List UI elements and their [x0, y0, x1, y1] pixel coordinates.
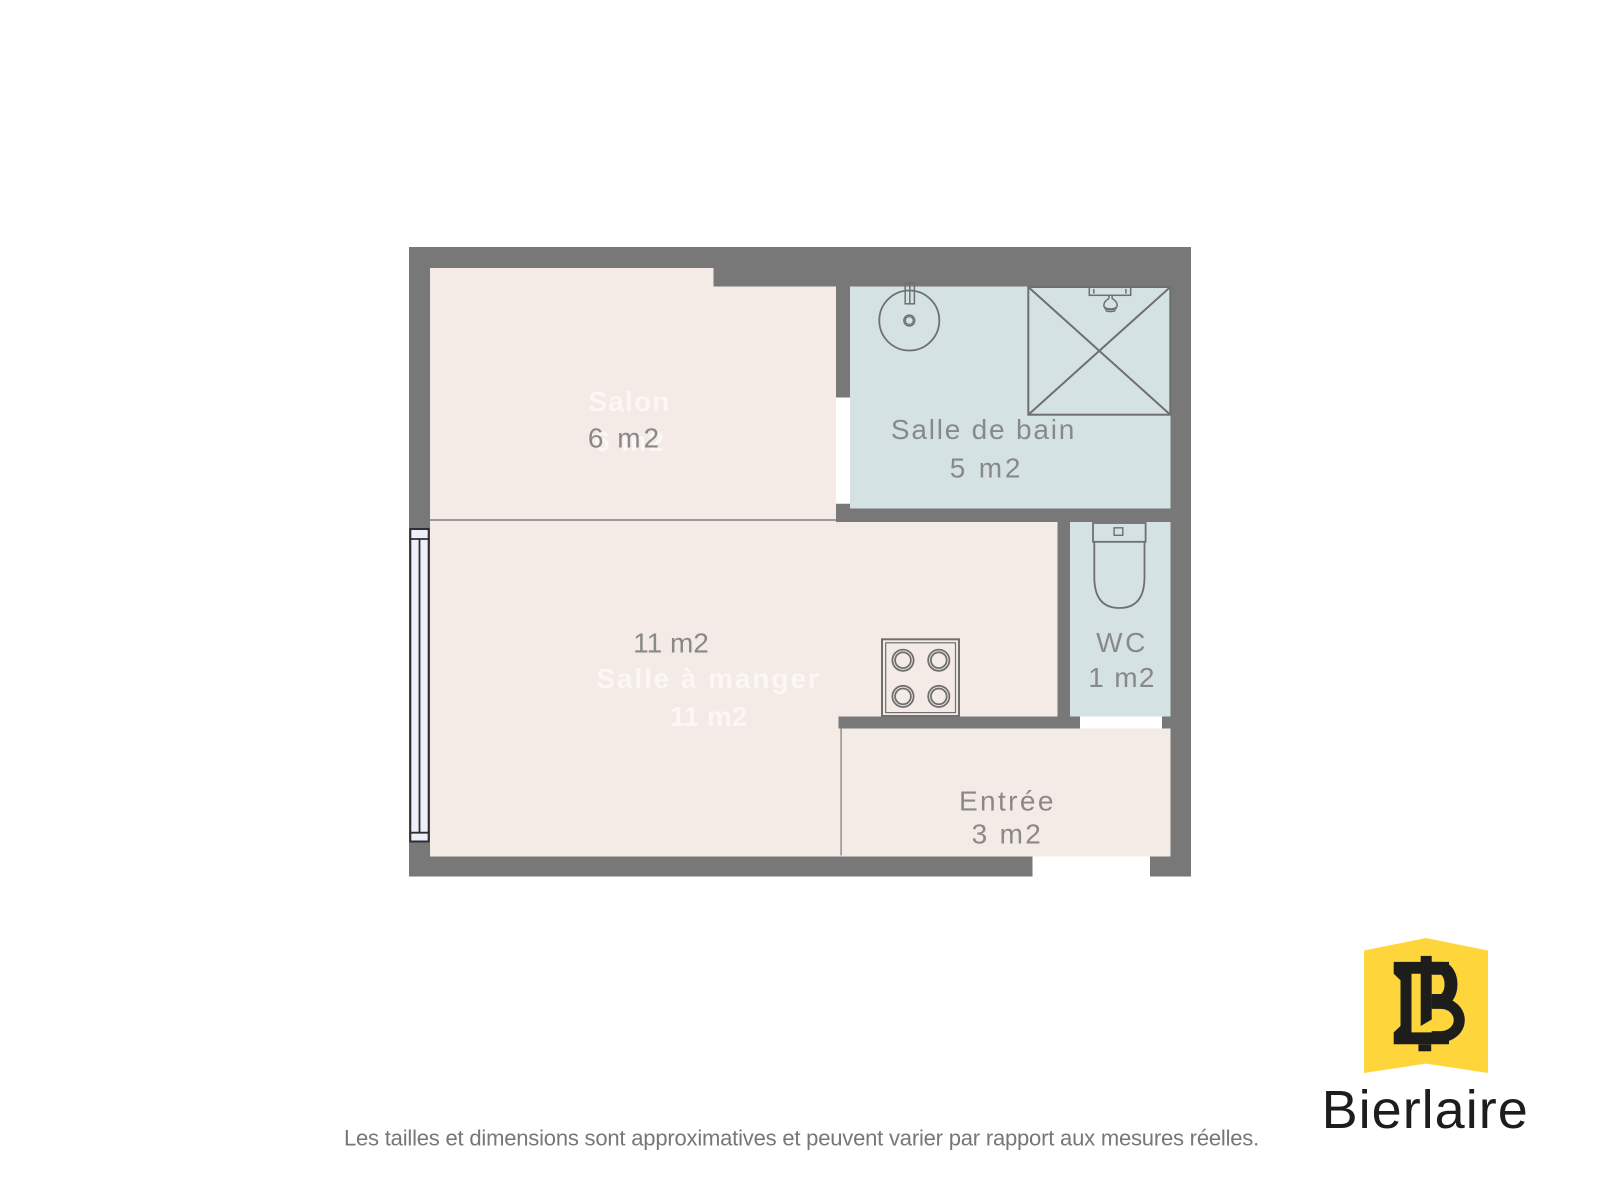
svg-text:11 m2: 11 m2 [670, 701, 748, 732]
svg-text:1 m2: 1 m2 [1088, 662, 1155, 693]
svg-text:Entrée: Entrée [959, 786, 1056, 817]
svg-text:Salle de bain: Salle de bain [891, 414, 1076, 445]
svg-text:Les tailles et dimensions sont: Les tailles et dimensions sont approxima… [344, 1125, 1259, 1150]
svg-text:3 m2: 3 m2 [972, 819, 1043, 850]
svg-text:Salle à manger: Salle à manger [596, 663, 820, 694]
svg-text:Bierlaire: Bierlaire [1322, 1080, 1529, 1140]
svg-text:WC: WC [1096, 627, 1148, 658]
svg-text:6 m2: 6 m2 [588, 423, 662, 454]
svg-text:5 m2: 5 m2 [950, 453, 1023, 484]
svg-text:Salon: Salon [588, 386, 670, 417]
svg-text:11 m2: 11 m2 [633, 628, 709, 659]
